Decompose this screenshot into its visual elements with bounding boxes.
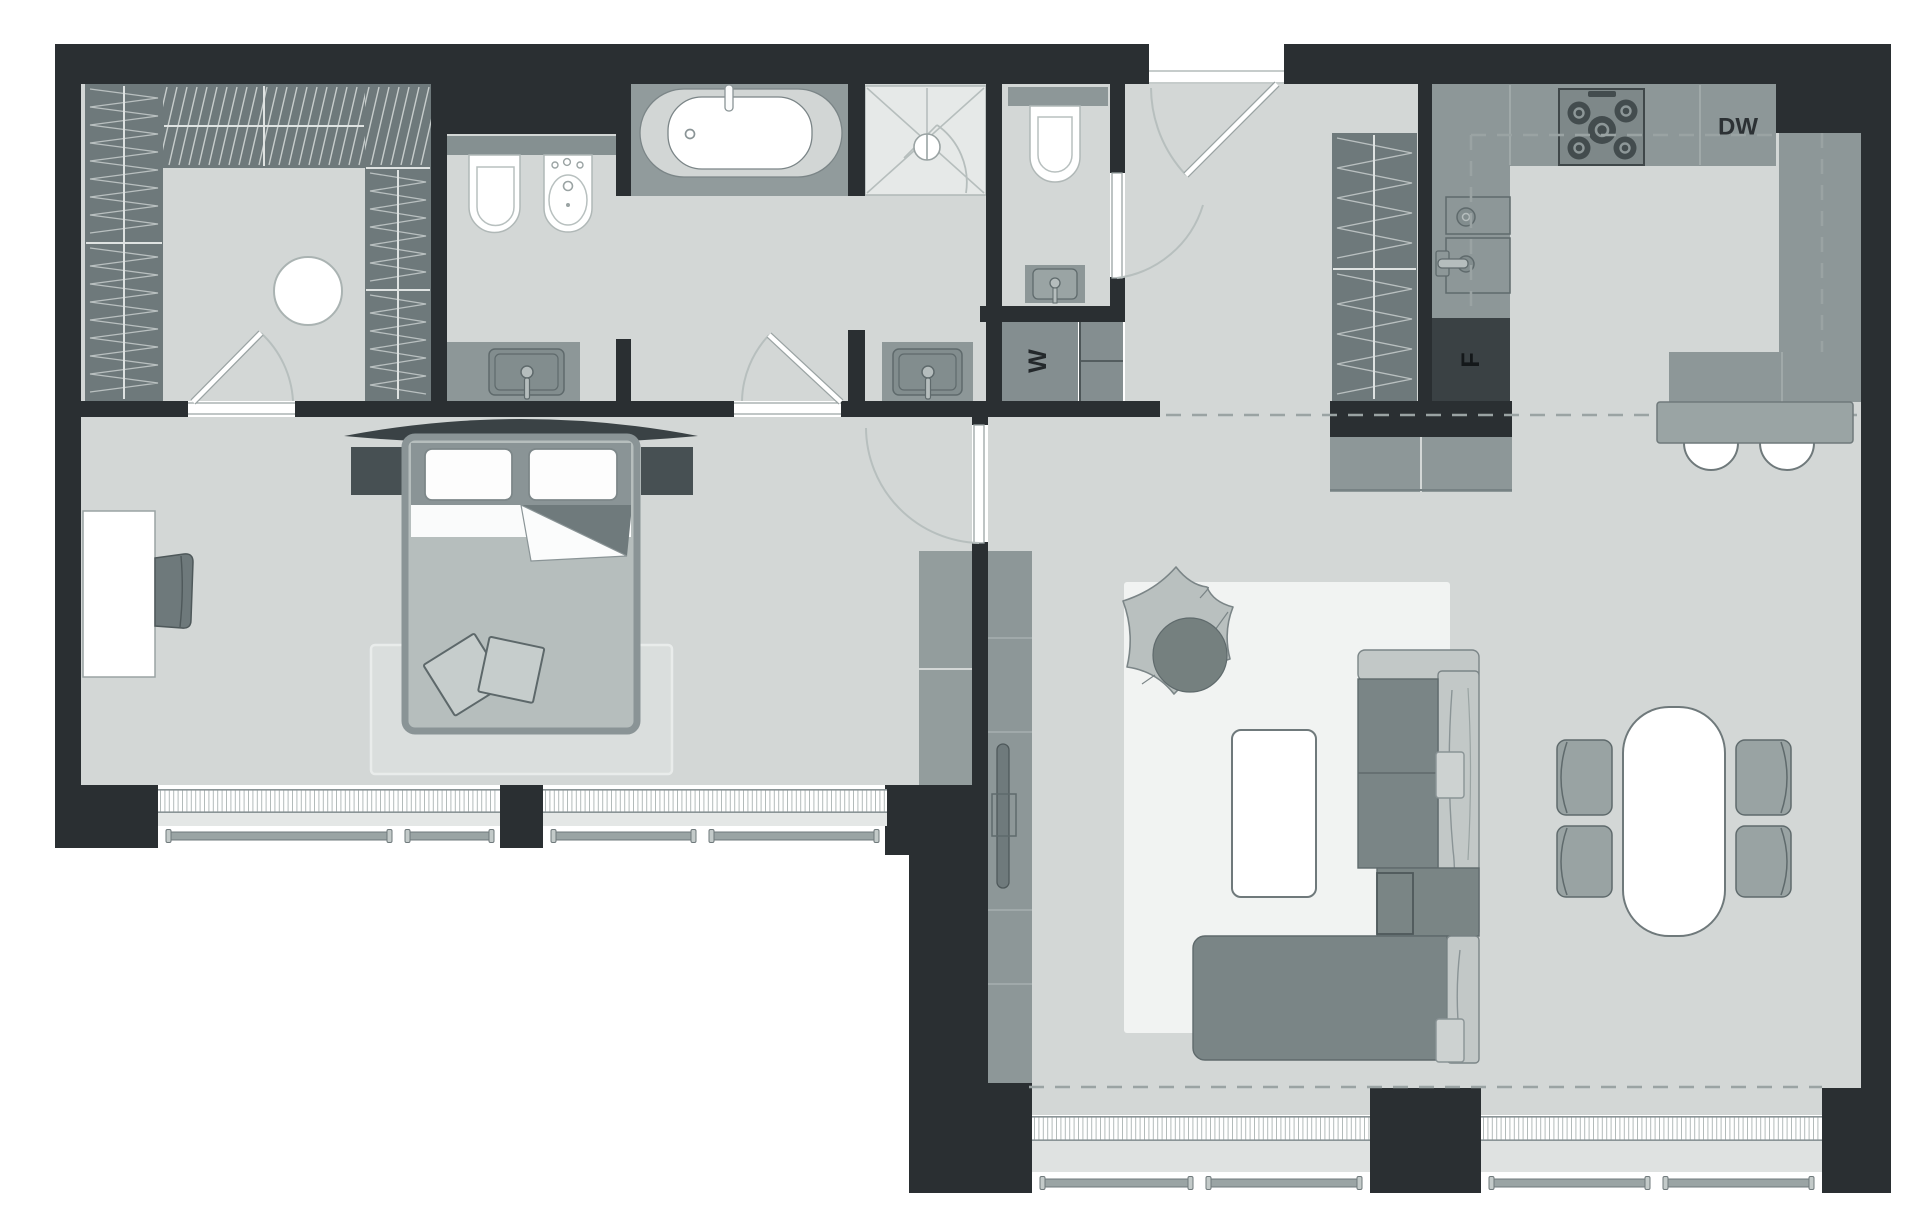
svg-text:DW: DW <box>1718 114 1758 141</box>
svg-text:W: W <box>1024 349 1052 373</box>
svg-text:F: F <box>1457 352 1485 367</box>
